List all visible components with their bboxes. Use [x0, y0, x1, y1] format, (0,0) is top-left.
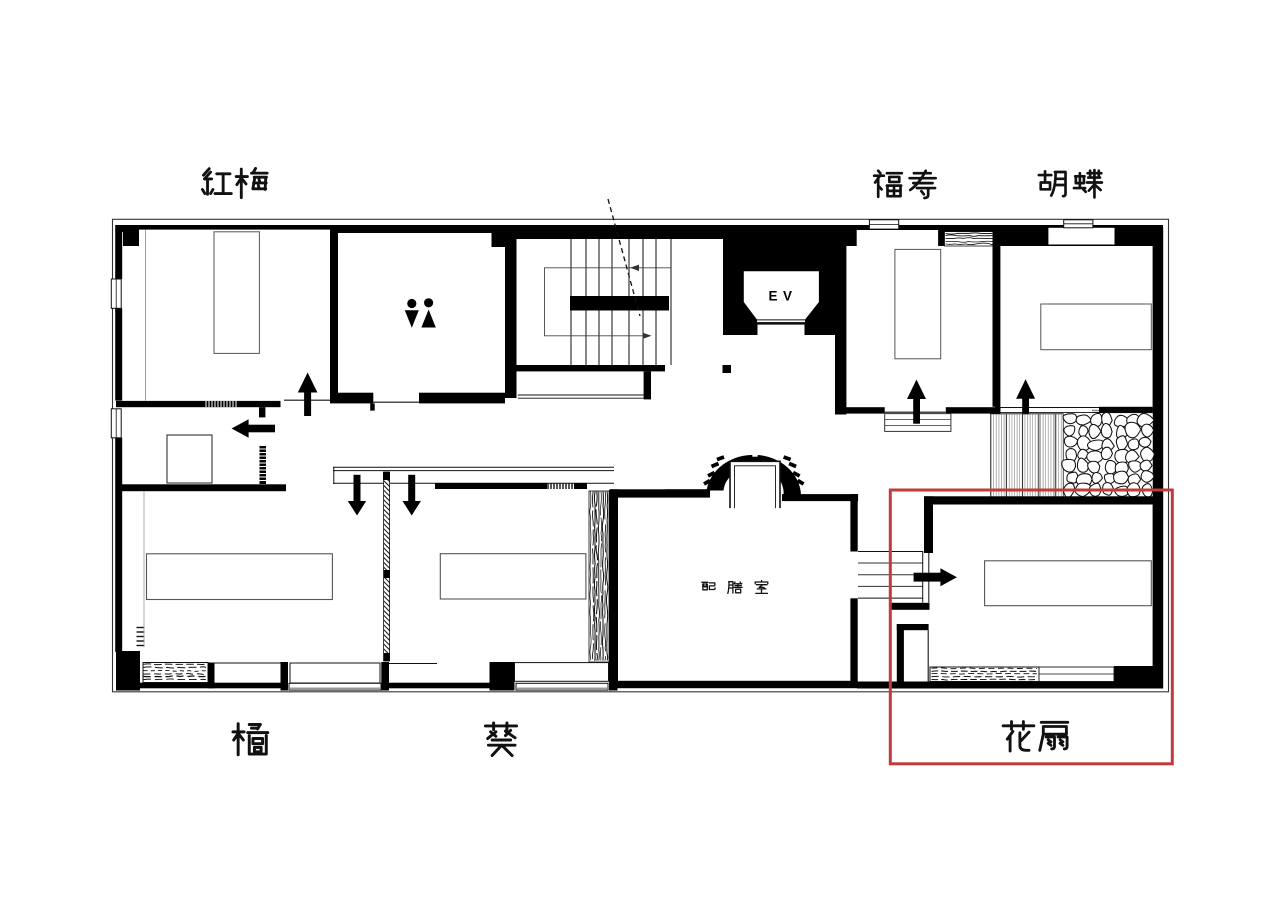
svg-text:EV: EV	[768, 289, 797, 304]
